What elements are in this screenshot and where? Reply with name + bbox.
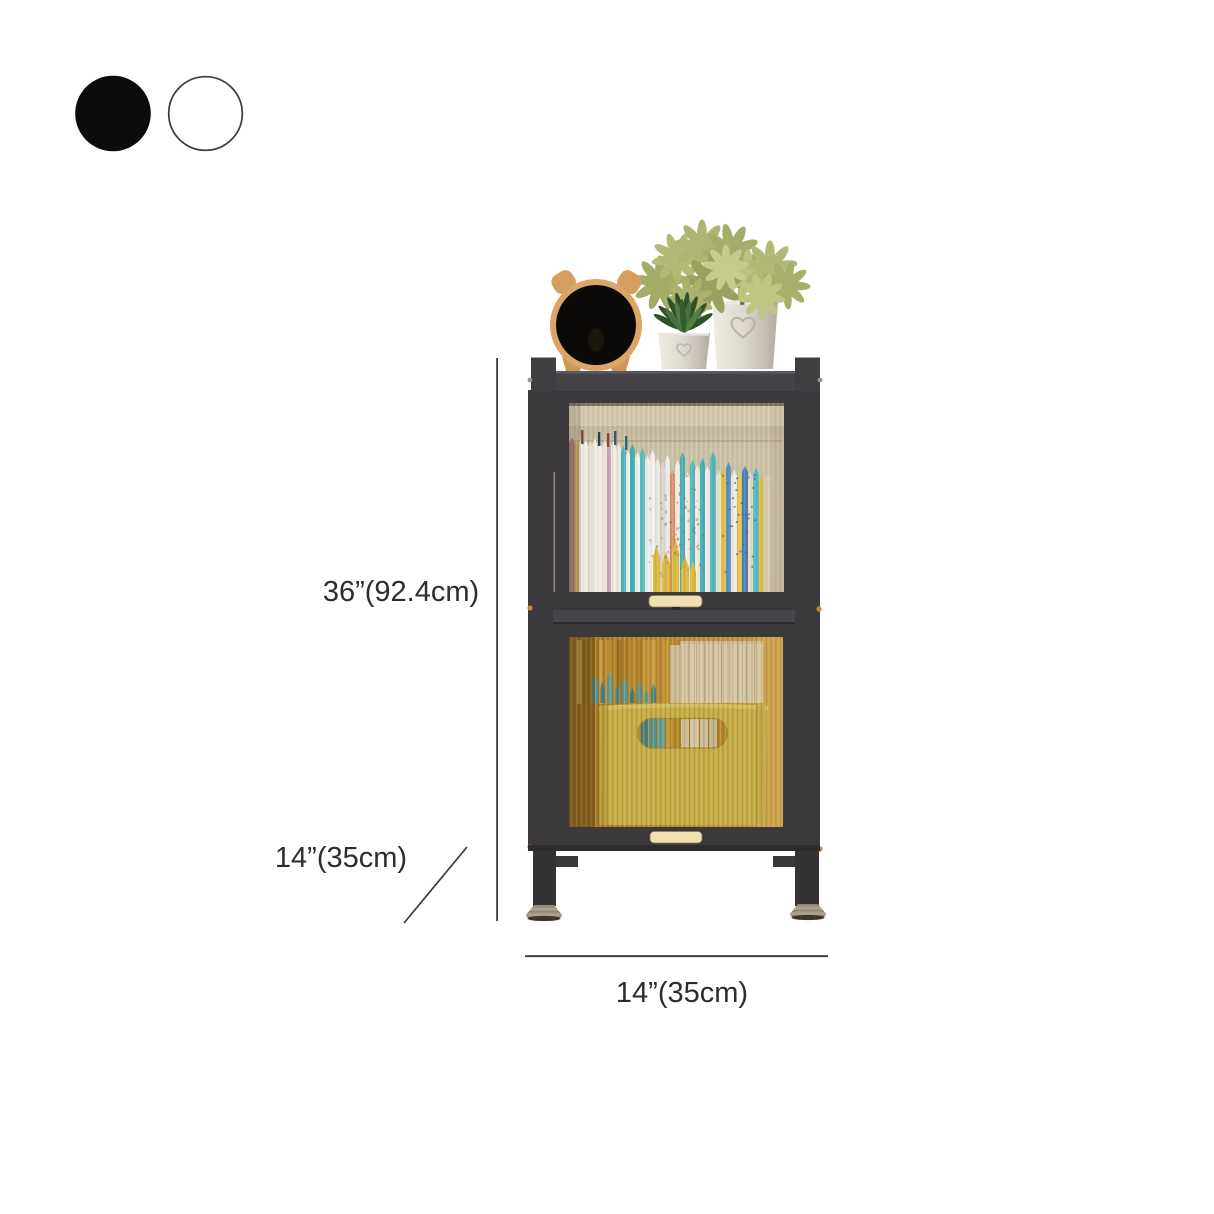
svg-text:14”(35cm): 14”(35cm): [616, 977, 748, 1009]
svg-text:36”(92.4cm): 36”(92.4cm): [323, 576, 479, 608]
svg-text:14”(35cm): 14”(35cm): [275, 842, 407, 874]
